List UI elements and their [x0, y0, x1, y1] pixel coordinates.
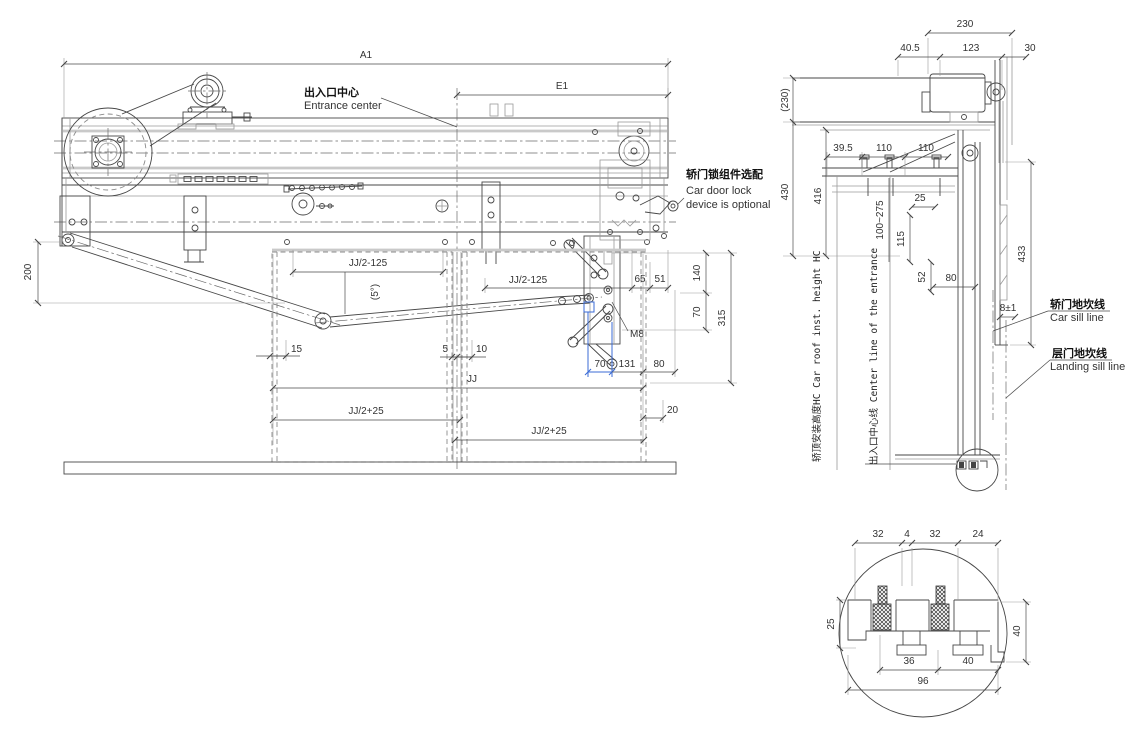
sill-detail-view: 32 4 32 24 25 40 36 40 96: [826, 529, 1031, 717]
dim-39-5: 39.5: [833, 143, 853, 154]
dim-24: 24: [972, 529, 984, 540]
dim-110a: 110: [876, 143, 892, 154]
side-structure: [792, 57, 1012, 491]
engineering-drawing: A1 E1 出入口中心 Entrance center 轿门锁组件选配 Car …: [0, 0, 1133, 735]
dim-jj2-125-right: JJ/2-125: [509, 275, 548, 286]
dim-angle-5: (5°): [370, 284, 381, 300]
dim-36: 36: [903, 656, 915, 667]
dim-40-5: 40.5: [900, 43, 920, 54]
guide-shoe-right: [931, 604, 949, 630]
dim-jj: JJ: [467, 374, 477, 385]
drive-wheel: [64, 108, 152, 196]
landing-sill-label-en: Landing sill line: [1050, 361, 1125, 373]
belt: [150, 103, 216, 146]
dim-123: 123: [963, 43, 980, 54]
front-dimensions: A1 E1 出入口中心 Entrance center 轿门锁组件选配 Car …: [23, 50, 770, 445]
motor-pulley: [122, 72, 252, 146]
dim-70-right: 70: [692, 306, 703, 318]
detail-circle: [839, 549, 1007, 717]
dim-25-detail: 25: [826, 618, 837, 630]
dim-25-side: 25: [914, 193, 926, 204]
left-pivot-bracket: [60, 196, 90, 246]
dim-416: 416: [813, 187, 824, 204]
dim-jj2-25-right: JJ/2+25: [531, 426, 567, 437]
dim-10: 10: [476, 344, 488, 355]
dim-100-275: 100~275: [875, 200, 886, 240]
car-sill-front: [64, 462, 676, 474]
drawing-canvas: A1 E1 出入口中心 Entrance center 轿门锁组件选配 Car …: [0, 0, 1133, 735]
dim-430: 430: [780, 183, 791, 200]
dim-115: 115: [896, 231, 907, 247]
dim-65: 65: [634, 274, 646, 285]
dim-32b: 32: [929, 529, 941, 540]
dim-52: 52: [917, 271, 928, 283]
car-door-lock-label-zh: 轿门锁组件选配: [686, 167, 763, 181]
belt: [122, 84, 194, 114]
dim-8-1: 8±1: [1000, 303, 1017, 314]
dim-20: 20: [667, 405, 679, 416]
sill-profile: [848, 586, 1004, 662]
dim-140: 140: [692, 264, 703, 281]
belt-fittings: [170, 104, 643, 215]
dim-433: 433: [1017, 245, 1028, 262]
dim-40-right: 40: [1012, 625, 1023, 637]
header-track: [54, 118, 676, 246]
entrance-center-label-en: Entrance center: [304, 100, 382, 112]
guide-shoe-left: [873, 604, 891, 630]
door-panel-left: [272, 252, 452, 462]
dim-51: 51: [654, 274, 666, 285]
car-door-lock-label-en1: Car door lock: [686, 185, 752, 197]
dim-80-front: 80: [653, 359, 665, 370]
hanger-roller: [962, 145, 978, 161]
dim-30: 30: [1024, 43, 1036, 54]
label-m8: M8: [630, 329, 644, 340]
dim-80-side: 80: [945, 273, 957, 284]
roof-height-caption: 轿顶安装高度HC Car roof inst. height HC: [811, 251, 823, 462]
dim-230-top: 230: [957, 19, 974, 30]
dim-a1: A1: [360, 50, 373, 61]
dim-70-blue: 70: [594, 359, 606, 370]
side-view: 230 40.5 123 30 (230) 430 416 39.5 110 1…: [780, 19, 1125, 491]
dim-315: 315: [717, 309, 728, 326]
car-door-lock-label-en2: device is optional: [686, 199, 770, 211]
detail-dimensions: 32 4 32 24 25 40 36 40 96: [826, 529, 1031, 695]
dim-131: 131: [619, 359, 636, 370]
dim-110b: 110: [918, 143, 934, 154]
dim-15: 15: [291, 344, 303, 355]
entrance-centerline-caption: 出入口中心线 Center line of the entrance: [868, 248, 880, 465]
car-sill-label-zh: 轿门地坎线: [1050, 297, 1105, 311]
entrance-center-label-zh: 出入口中心: [304, 85, 359, 99]
landing-sill-label-zh: 层门地坎线: [1051, 346, 1107, 360]
motor: [930, 74, 985, 112]
dim-4: 4: [904, 529, 910, 540]
car-sill-label-en: Car sill line: [1050, 312, 1104, 324]
dim-230-ref: (230): [780, 88, 791, 111]
dim-200: 200: [23, 263, 34, 280]
dim-e1: E1: [556, 81, 569, 92]
dim-32a: 32: [872, 529, 884, 540]
dim-jj2-125-left: JJ/2-125: [349, 258, 388, 269]
side-dimensions: 230 40.5 123 30 (230) 430 416 39.5 110 1…: [780, 19, 1125, 465]
dim-jj2-25-left: JJ/2+25: [348, 406, 384, 417]
dim-40-bottom: 40: [962, 656, 974, 667]
dim-96: 96: [917, 676, 929, 687]
front-view: A1 E1 出入口中心 Entrance center 轿门锁组件选配 Car …: [23, 50, 770, 474]
dim-5: 5: [442, 344, 448, 355]
